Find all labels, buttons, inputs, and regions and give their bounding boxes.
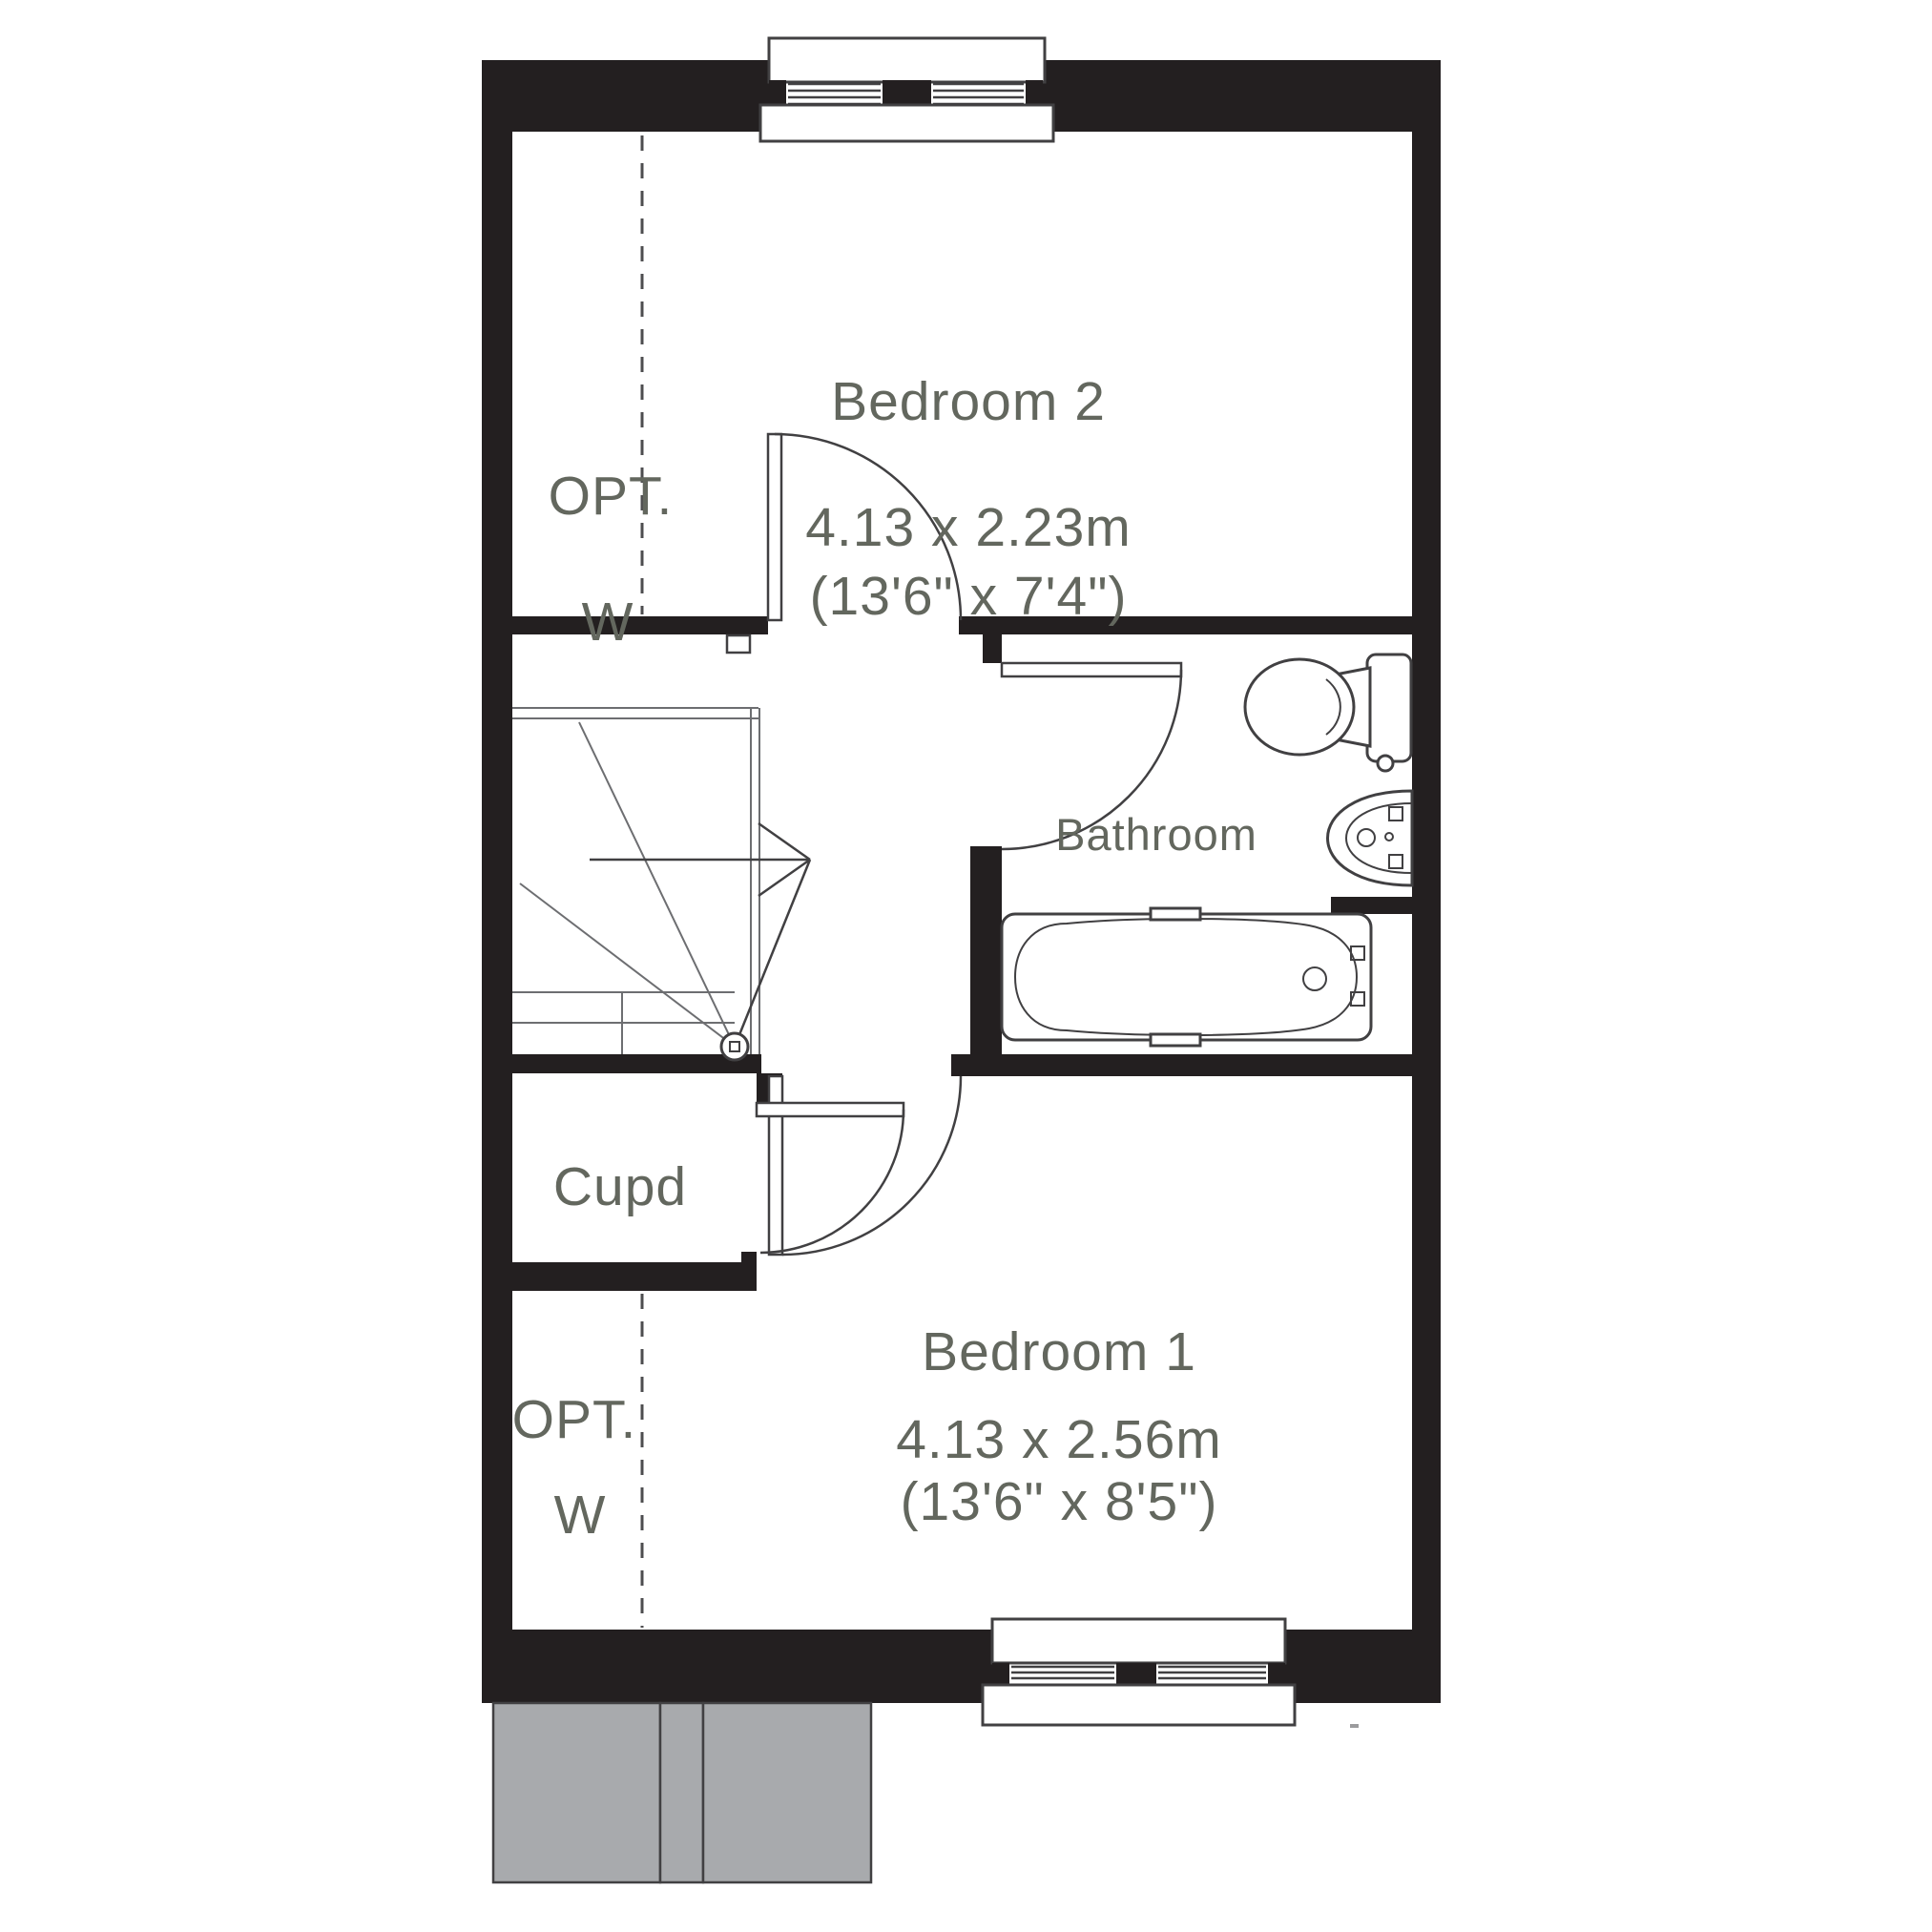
- opt-wardrobe-bedroom1-abbr: OPT.: [512, 1389, 637, 1450]
- cupboard-bottom-wall: [512, 1262, 757, 1291]
- bedroom2-size-metric: 4.13 x 2.23m: [805, 497, 1132, 558]
- toilet-bowl: [1245, 659, 1354, 755]
- bottom-wall-left-segment: [482, 1630, 992, 1703]
- window-bottom-outer-sill: [983, 1685, 1295, 1725]
- top-wall-left-segment: [482, 60, 771, 132]
- top-wall-right-segment: [1043, 60, 1441, 132]
- window-bottom-mullion: [1116, 1663, 1156, 1685]
- window-bottom-jamb-right: [1268, 1663, 1285, 1685]
- bedroom2-door-leaf: [768, 434, 781, 620]
- bedroom2-label: Bedroom 2: [831, 371, 1106, 432]
- cupboard-door-leaf: [757, 1103, 904, 1116]
- sink-stub-wall: [1331, 897, 1412, 914]
- stairs: [512, 708, 810, 1060]
- bathtub-icon: [1002, 908, 1371, 1046]
- adjacent-structure-blocks: [493, 1703, 871, 1882]
- gray-block-middle: [660, 1703, 703, 1882]
- toilet-cistern: [1367, 654, 1411, 761]
- bathroom-label: Bathroom: [1055, 809, 1257, 860]
- bathroom-door-leaf: [1002, 663, 1181, 676]
- bedroom2-size-imperial: (13'6" x 7'4"): [810, 566, 1128, 627]
- stray-print-mark: [1350, 1724, 1359, 1728]
- left-wall: [482, 60, 512, 1703]
- bottom-wall-right-segment: [1285, 1630, 1441, 1703]
- opt-wardrobe-bedroom2-letter: W: [582, 592, 634, 653]
- bathtub-handle: [1151, 1034, 1200, 1046]
- gray-block-left: [493, 1703, 660, 1882]
- window-top-jamb-right: [1026, 80, 1043, 107]
- cupboard-top-wall: [512, 1054, 761, 1073]
- window-bottom: [983, 1619, 1295, 1725]
- floor-plan: Bedroom 2 4.13 x 2.23m (13'6" x 7'4") OP…: [0, 0, 1932, 1932]
- bathtub-rim: [1002, 914, 1371, 1040]
- floor-plan-page: Bedroom 2 4.13 x 2.23m (13'6" x 7'4") OP…: [0, 0, 1932, 1932]
- window-top-mullion: [883, 80, 931, 107]
- opt-wardrobe-bedroom1-letter: W: [554, 1485, 607, 1546]
- gray-block-right: [703, 1703, 871, 1882]
- opt-wardrobe-bedroom2-abbr: OPT.: [549, 466, 674, 527]
- window-bottom-jamb-left: [992, 1663, 1009, 1685]
- window-top-jamb-left: [769, 80, 786, 107]
- cupboard-label: Cupd: [553, 1156, 687, 1217]
- landing-bath-divider: [970, 846, 1002, 1054]
- window-bottom-inner-sill: [992, 1619, 1285, 1663]
- toilet-flush-button: [1378, 756, 1393, 771]
- bedroom1-size-metric: 4.13 x 2.56m: [896, 1409, 1222, 1470]
- bedroom2-wall-left: [512, 616, 768, 634]
- bedroom1-size-imperial: (13'6" x 8'5"): [901, 1471, 1218, 1532]
- bathroom-door-post: [983, 634, 1002, 663]
- cupboard-door-jamb: [741, 1252, 757, 1266]
- window-top: [760, 38, 1053, 141]
- stair-winder-edge: [579, 722, 735, 1047]
- bedroom2-door-jamb-tick: [727, 635, 750, 653]
- bedroom1-label: Bedroom 1: [922, 1321, 1196, 1382]
- stair-newel-post: [721, 1033, 748, 1060]
- right-wall: [1412, 60, 1441, 1703]
- bathtub-handle: [1151, 908, 1200, 920]
- bedroom1-top-wall: [951, 1054, 1412, 1076]
- window-top-outer-sill: [769, 38, 1045, 82]
- window-top-inner-sill: [760, 105, 1053, 141]
